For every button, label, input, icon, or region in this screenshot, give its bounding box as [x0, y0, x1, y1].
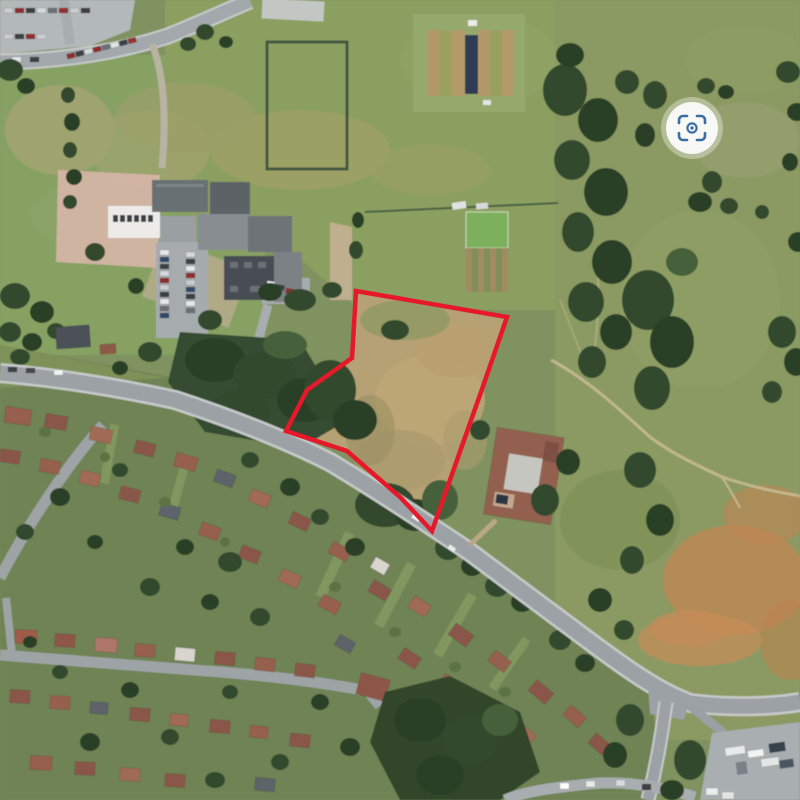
pitch-covers	[465, 35, 478, 94]
cricket-pitch	[413, 14, 525, 112]
satellite-scene	[0, 0, 800, 800]
aerial-photo	[0, 0, 800, 800]
lens-dot	[690, 126, 693, 129]
photosphere-icon[interactable]	[661, 97, 723, 159]
pool	[495, 494, 508, 505]
